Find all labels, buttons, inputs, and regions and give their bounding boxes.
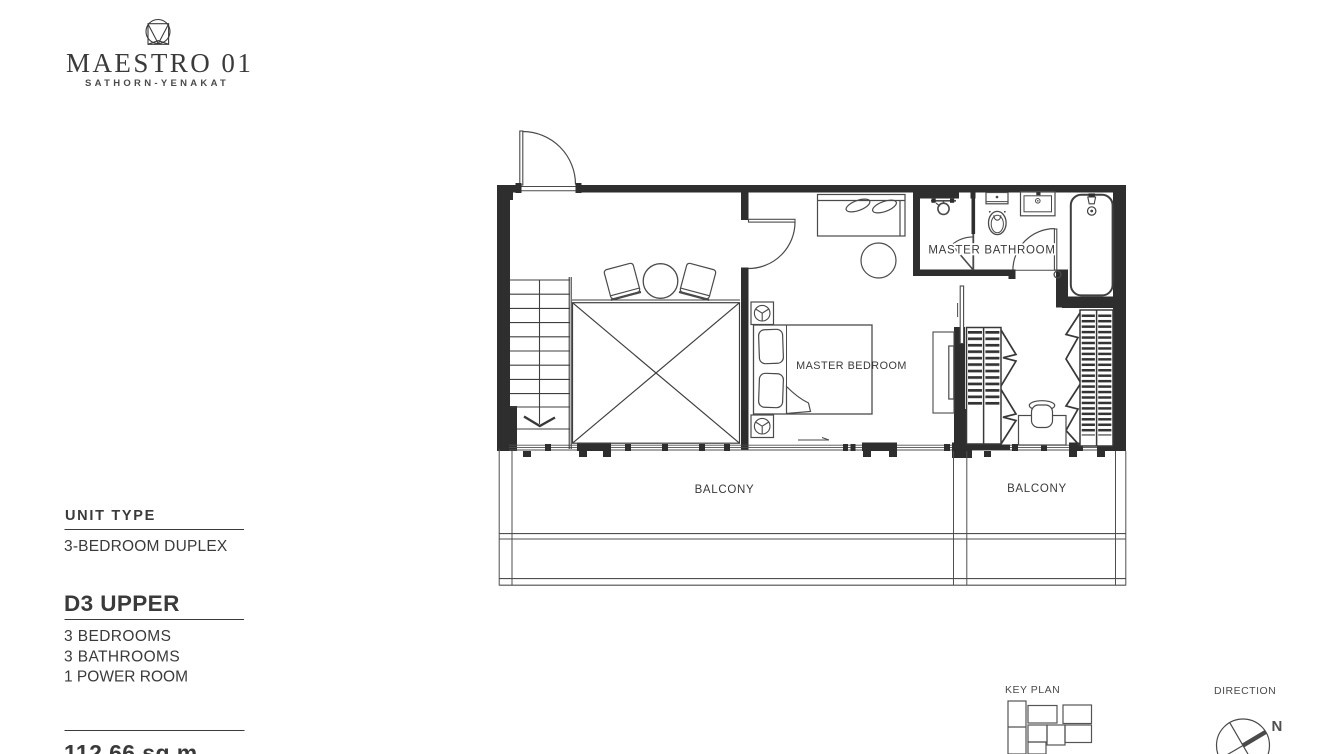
- svg-text:D3 UPPER: D3 UPPER: [64, 591, 180, 616]
- svg-text:3 BATHROOMS: 3 BATHROOMS: [64, 649, 180, 666]
- svg-text:DIRECTION: DIRECTION: [1214, 685, 1276, 697]
- svg-text:BALCONY: BALCONY: [695, 484, 755, 496]
- svg-text:1 POWER ROOM: 1 POWER ROOM: [64, 669, 188, 686]
- svg-text:N: N: [1272, 718, 1283, 735]
- svg-text:MASTER BATHROOM: MASTER BATHROOM: [928, 245, 1055, 257]
- svg-text:UNIT TYPE: UNIT TYPE: [65, 508, 156, 524]
- svg-text:KEY PLAN: KEY PLAN: [1005, 684, 1060, 696]
- svg-text:SATHORN-YENAKAT: SATHORN-YENAKAT: [85, 78, 229, 89]
- svg-text:112.66 sq.m: 112.66 sq.m: [64, 740, 198, 754]
- svg-text:MAESTRO 01: MAESTRO 01: [66, 48, 253, 78]
- svg-text:BALCONY: BALCONY: [1007, 483, 1067, 495]
- svg-text:3-BEDROOM DUPLEX: 3-BEDROOM DUPLEX: [64, 538, 228, 555]
- svg-text:3 BEDROOMS: 3 BEDROOMS: [64, 628, 171, 645]
- svg-text:MASTER BEDROOM: MASTER BEDROOM: [796, 360, 907, 372]
